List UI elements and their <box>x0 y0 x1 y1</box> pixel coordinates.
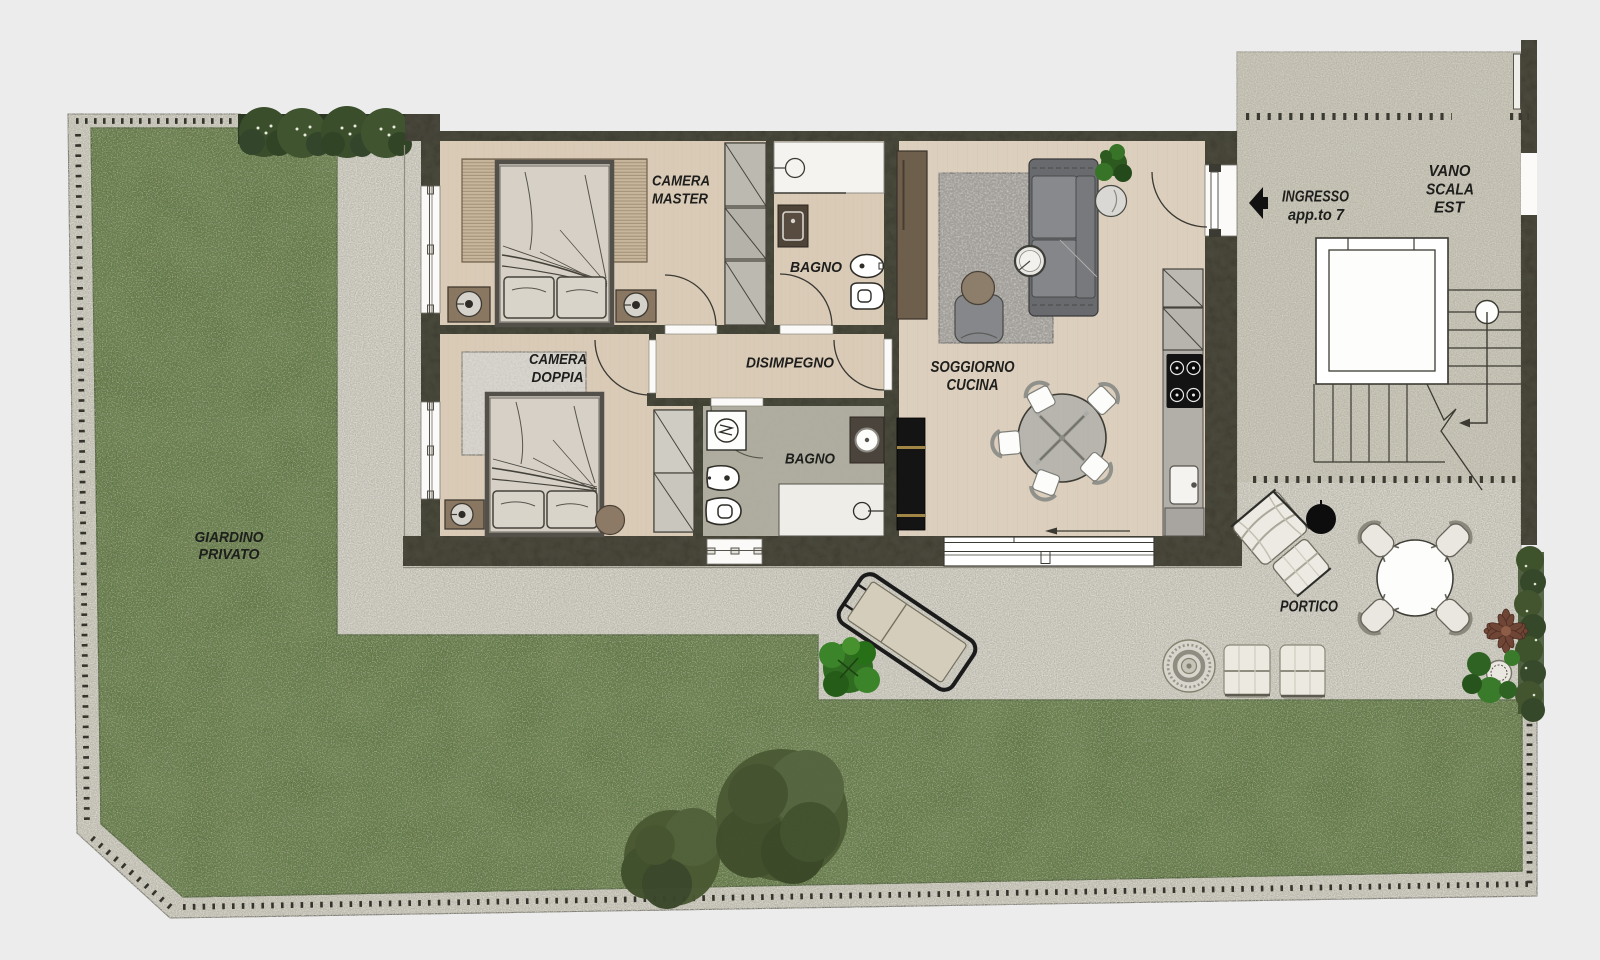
svg-text:VANO: VANO <box>1429 163 1471 180</box>
svg-text:PRIVATO: PRIVATO <box>199 546 260 563</box>
svg-text:CAMERA: CAMERA <box>529 352 587 368</box>
svg-text:SOGGIORNO: SOGGIORNO <box>931 359 1015 376</box>
svg-text:CAMERA: CAMERA <box>652 173 710 190</box>
svg-text:SCALA: SCALA <box>1426 182 1474 199</box>
svg-text:app.to 7: app.to 7 <box>1288 207 1345 224</box>
svg-text:GIARDINO: GIARDINO <box>195 529 264 546</box>
svg-text:CUCINA: CUCINA <box>947 377 999 394</box>
svg-text:DOPPIA: DOPPIA <box>532 370 584 386</box>
svg-text:BAGNO: BAGNO <box>785 451 835 468</box>
svg-text:PORTICO: PORTICO <box>1280 599 1338 616</box>
svg-text:EST: EST <box>1434 200 1466 217</box>
svg-text:BAGNO: BAGNO <box>790 259 842 276</box>
svg-text:DISIMPEGNO: DISIMPEGNO <box>746 356 835 372</box>
svg-text:MASTER: MASTER <box>652 191 708 208</box>
svg-text:INGRESSO: INGRESSO <box>1282 189 1349 206</box>
